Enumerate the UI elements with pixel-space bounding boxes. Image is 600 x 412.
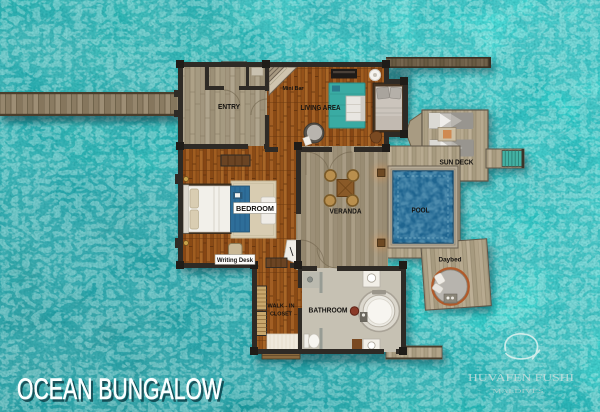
svg-text:POOL: POOL (412, 206, 431, 215)
svg-text:MALDIVES: MALDIVES (493, 388, 545, 395)
svg-text:VERANDA: VERANDA (330, 207, 362, 216)
svg-text:Daybed: Daybed (439, 257, 462, 264)
svg-text:CLOSET: CLOSET (270, 312, 293, 318)
svg-text:ENTRY: ENTRY (218, 102, 240, 111)
svg-text:SUN DECK: SUN DECK (440, 158, 475, 167)
svg-text:OCEAN BUNGALOW: OCEAN BUNGALOW (17, 373, 222, 406)
svg-text:HUVAFEN FUSHI: HUVAFEN FUSHI (468, 373, 575, 384)
svg-text:Mini Bar: Mini Bar (283, 86, 305, 92)
svg-text:Writing Desk: Writing Desk (217, 257, 254, 264)
svg-text:BATHROOM: BATHROOM (309, 306, 348, 315)
svg-text:LIVING AREA: LIVING AREA (301, 103, 341, 112)
svg-text:WALK - IN: WALK - IN (268, 304, 295, 310)
svg-text:BEDROOM: BEDROOM (236, 206, 274, 213)
